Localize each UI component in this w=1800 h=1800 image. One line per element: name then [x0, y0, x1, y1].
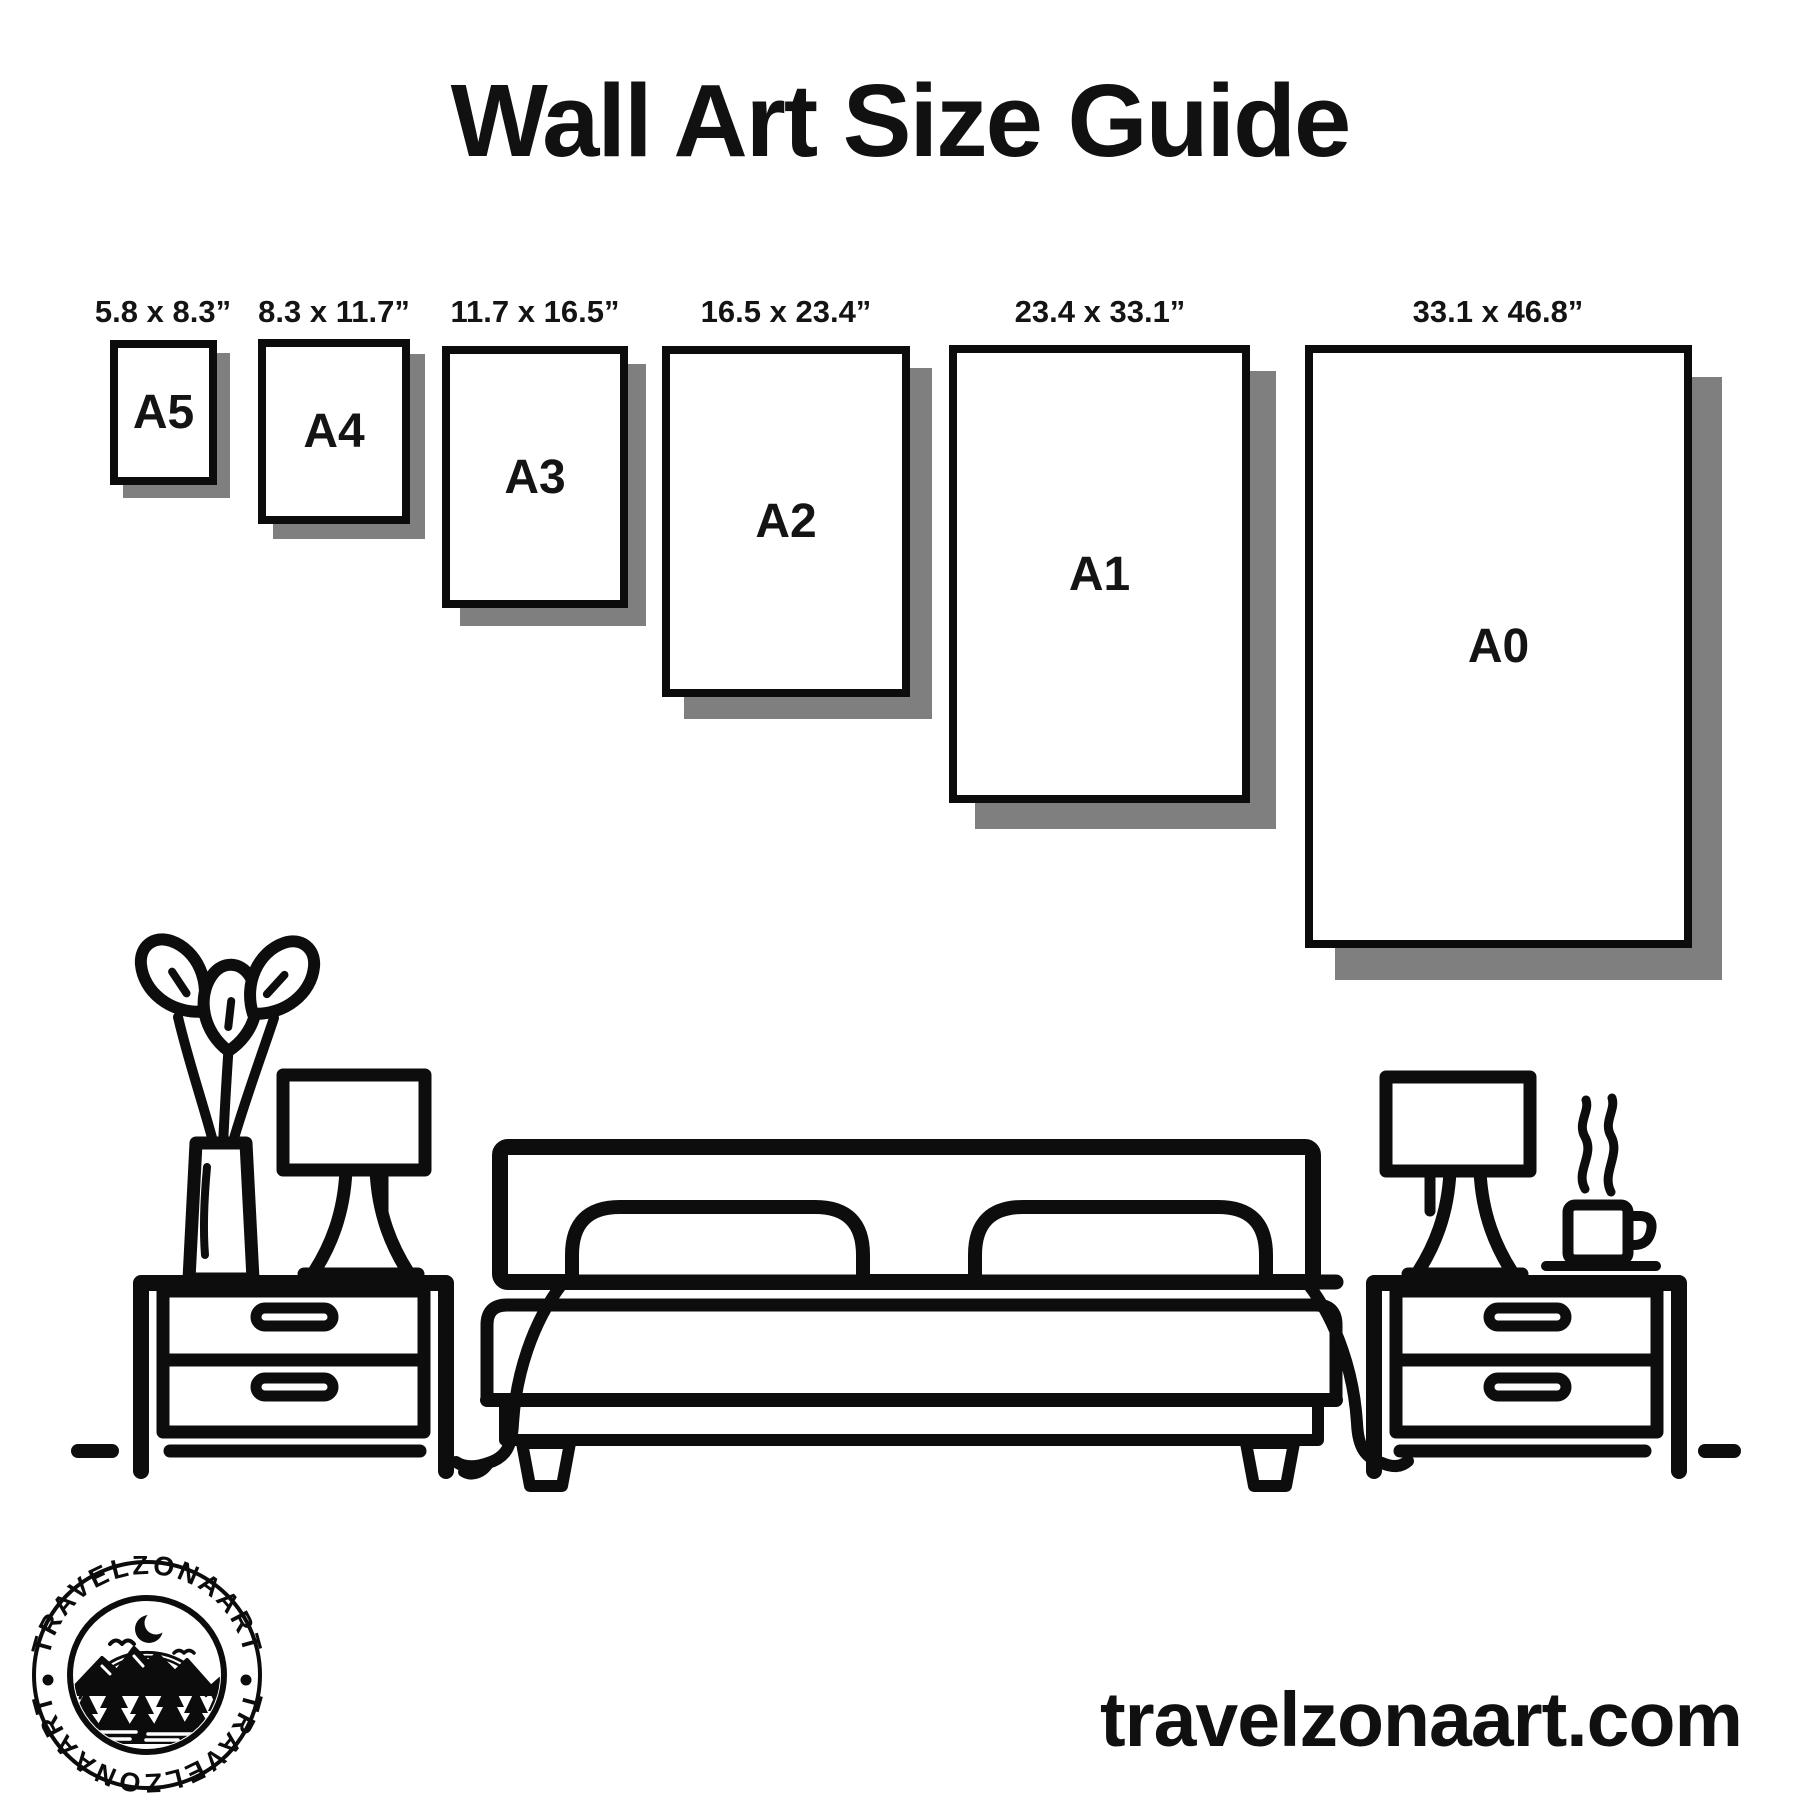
size-name-a3: A3 — [504, 450, 565, 505]
vase-accent-line — [204, 1167, 207, 1255]
wall-art-size-guide-poster: Wall Art Size Guide 5.8 x 8.3” 8.3 x 11.… — [0, 0, 1800, 1800]
brand-logo: TRAVELZONAART TRAVELZONAART — [28, 1556, 266, 1794]
bed-base — [505, 1403, 1318, 1440]
pillow-left — [572, 1207, 863, 1282]
size-name-a4: A4 — [303, 404, 364, 459]
frame-a3: A3 — [442, 346, 628, 608]
bed-leg-right — [1246, 1443, 1294, 1486]
steam-line — [1582, 1100, 1588, 1189]
pillow-right — [975, 1207, 1266, 1282]
logo-dot-left — [43, 1675, 54, 1686]
size-name-a1: A1 — [1069, 547, 1130, 602]
dimension-label-a0: 33.1 x 46.8” — [1338, 294, 1658, 330]
dimension-label-a1: 23.4 x 33.1” — [940, 294, 1260, 330]
cup-body — [1568, 1205, 1628, 1260]
frame-a5: A5 — [110, 340, 217, 485]
table-lamp-right-illustration — [1386, 1077, 1530, 1274]
frame-a4: A4 — [258, 339, 410, 524]
page-title: Wall Art Size Guide — [0, 62, 1800, 180]
bed-illustration — [456, 1147, 1408, 1486]
size-name-a5: A5 — [133, 385, 194, 440]
logo-dot-right — [241, 1675, 252, 1686]
bed-leg-left — [522, 1443, 570, 1486]
frame-a2: A2 — [662, 346, 910, 697]
duvet-face — [487, 1305, 1336, 1400]
vase — [189, 1143, 253, 1279]
frame-a1: A1 — [949, 345, 1250, 803]
nightstand-left-illustration — [141, 1283, 446, 1471]
table-lamp-left-illustration — [283, 1075, 425, 1274]
leaf-vein — [228, 1001, 231, 1027]
steam-line — [1608, 1098, 1614, 1192]
lamp-shade — [283, 1075, 425, 1170]
coffee-cup-illustration — [1546, 1098, 1656, 1266]
moon-cutout — [145, 1612, 168, 1635]
bedroom-scene-illustration — [0, 855, 1800, 1500]
nightstand-right-illustration — [1374, 1283, 1679, 1471]
size-name-a0: A0 — [1468, 619, 1529, 674]
bird-icon — [174, 1651, 194, 1654]
lamp-stem — [314, 1170, 408, 1272]
size-name-a2: A2 — [755, 494, 816, 549]
lamp-shade — [1386, 1077, 1530, 1171]
dimension-label-a2: 16.5 x 23.4” — [626, 294, 946, 330]
website-url: travelzonaart.com — [1100, 1676, 1742, 1765]
